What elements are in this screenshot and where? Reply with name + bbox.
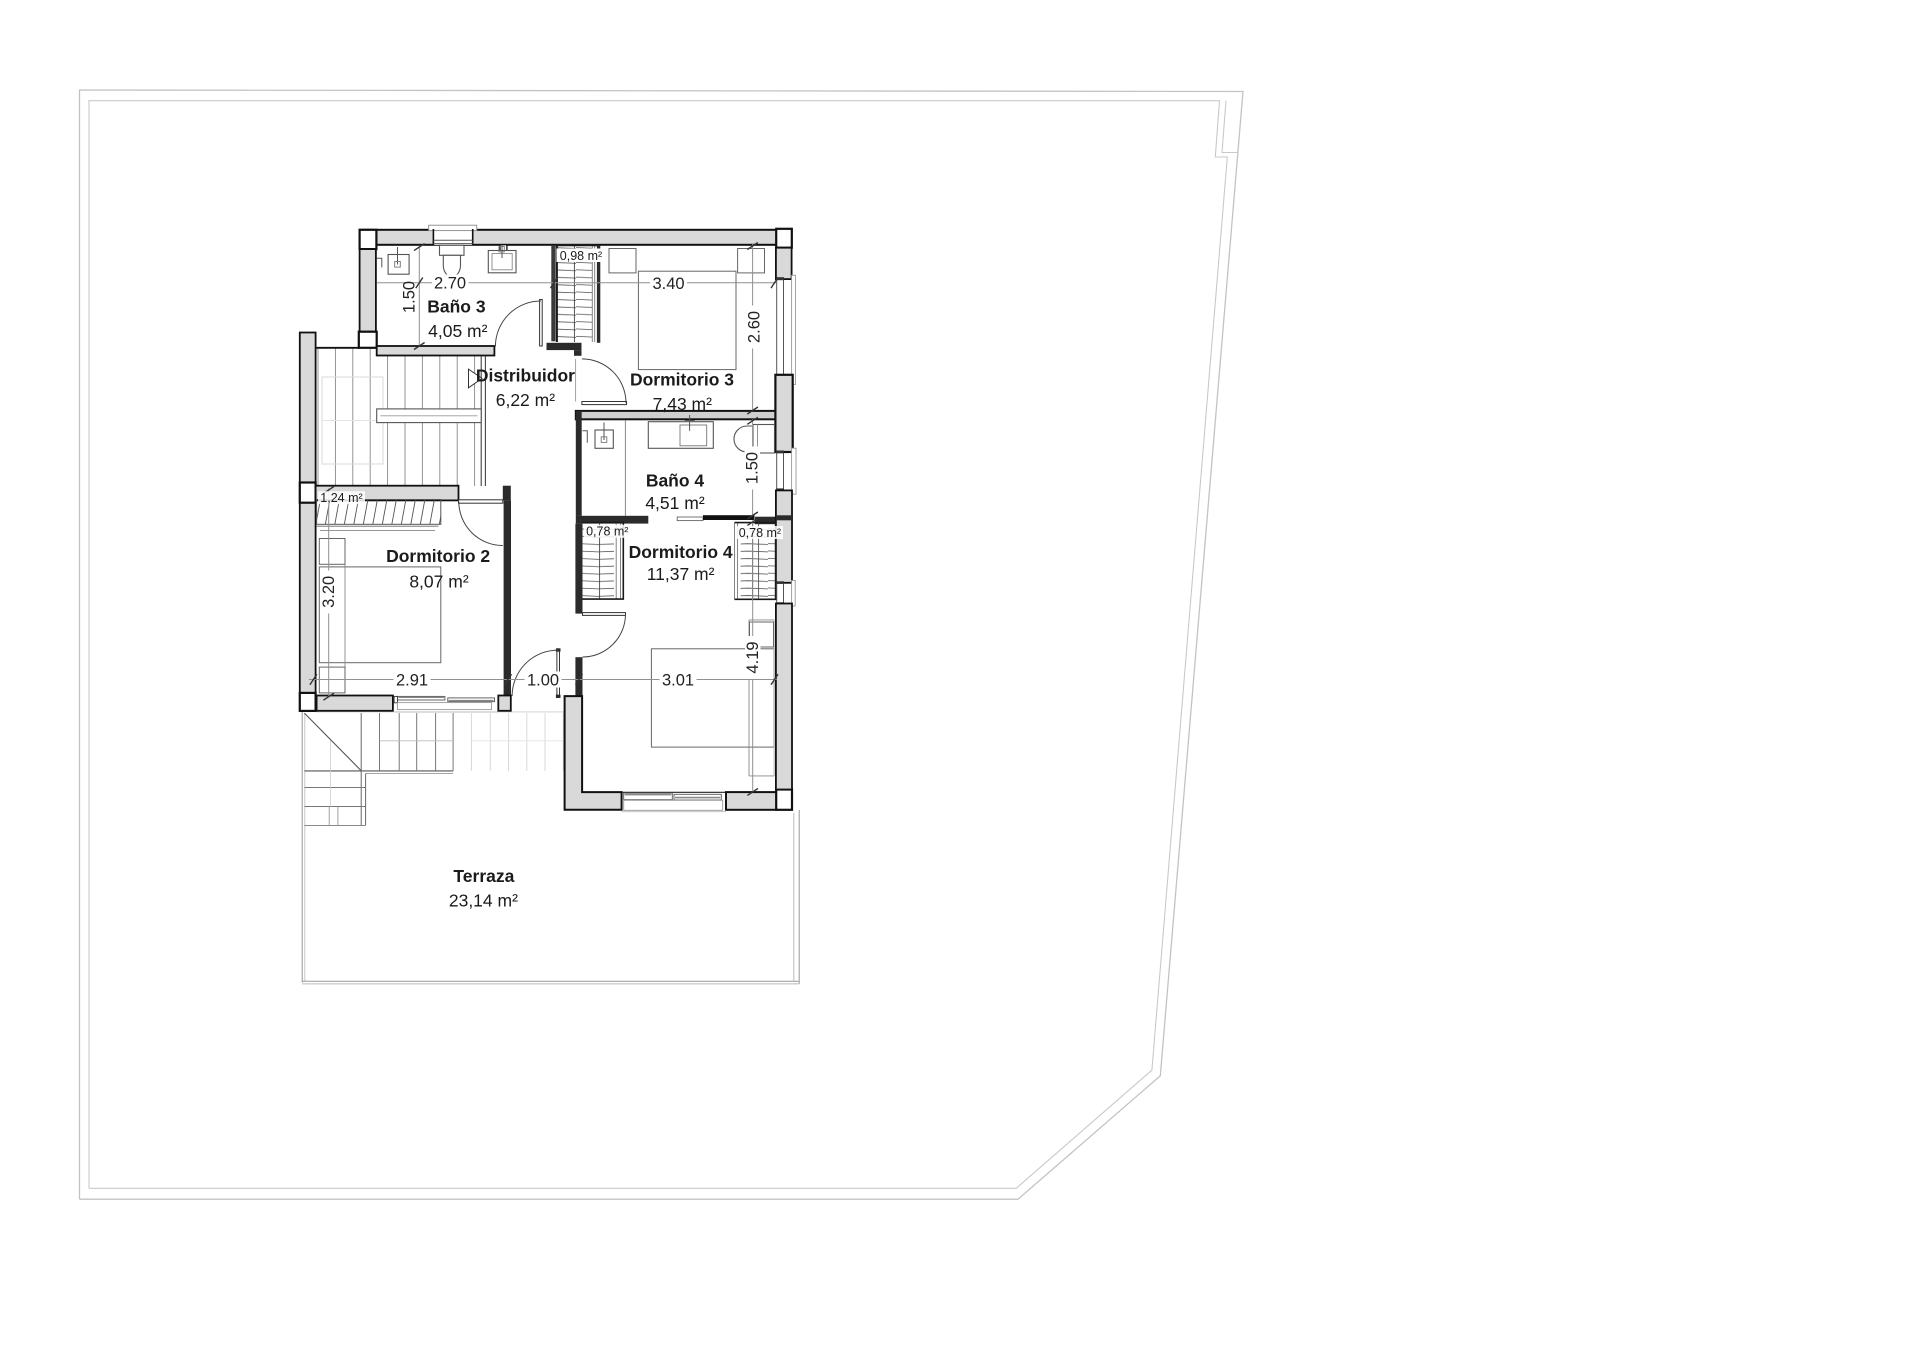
svg-text:2.91: 2.91	[396, 671, 428, 689]
svg-text:3.01: 3.01	[662, 671, 694, 689]
svg-text:11,37 m²: 11,37 m²	[647, 564, 715, 584]
svg-text:3.40: 3.40	[652, 275, 684, 293]
svg-text:7,43 m²: 7,43 m²	[653, 394, 712, 414]
svg-text:Baño 3: Baño 3	[427, 296, 486, 316]
svg-text:2.60: 2.60	[745, 311, 763, 343]
svg-text:Terraza: Terraza	[453, 866, 514, 886]
svg-text:1,24 m²: 1,24 m²	[320, 491, 362, 505]
svg-text:1.00: 1.00	[527, 671, 559, 689]
svg-text:Dormitorio 3: Dormitorio 3	[630, 370, 734, 390]
svg-text:23,14 m²: 23,14 m²	[449, 891, 518, 911]
svg-text:4.19: 4.19	[744, 641, 762, 673]
svg-text:6,22 m²: 6,22 m²	[496, 390, 555, 410]
svg-text:Dormitorio 2: Dormitorio 2	[386, 546, 490, 566]
svg-text:1.50: 1.50	[744, 452, 762, 484]
svg-text:4,05 m²: 4,05 m²	[428, 321, 487, 341]
svg-text:2.70: 2.70	[434, 274, 466, 292]
svg-text:4,51 m²: 4,51 m²	[645, 493, 704, 513]
svg-text:1.50: 1.50	[400, 281, 418, 313]
svg-text:8,07 m²: 8,07 m²	[409, 571, 468, 591]
svg-text:0,78 m²: 0,78 m²	[586, 525, 628, 539]
svg-text:Distribuidor: Distribuidor	[476, 366, 575, 386]
svg-text:0,98 m²: 0,98 m²	[560, 249, 602, 263]
svg-text:3.20: 3.20	[320, 576, 338, 608]
svg-text:Baño 4: Baño 4	[646, 470, 705, 490]
svg-text:0,78 m²: 0,78 m²	[739, 526, 781, 540]
svg-text:Dormitorio 4: Dormitorio 4	[629, 542, 733, 562]
